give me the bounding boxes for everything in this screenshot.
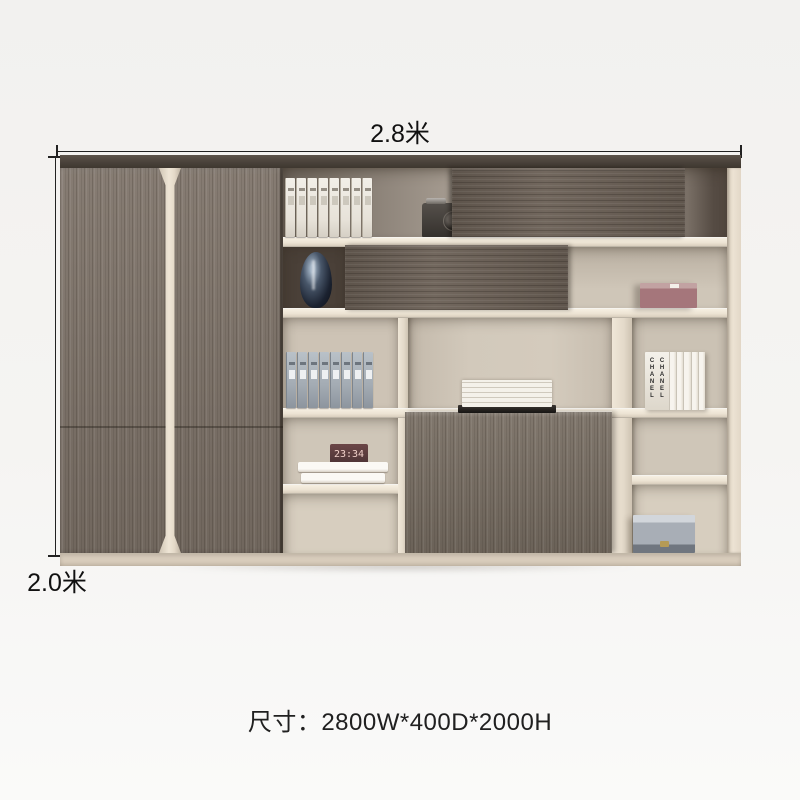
box-latch bbox=[660, 541, 669, 547]
book-edge bbox=[691, 352, 698, 410]
binder-spine bbox=[307, 178, 317, 237]
width-dimension-line bbox=[57, 151, 741, 152]
binder-spine bbox=[296, 178, 306, 237]
gray-storage-box bbox=[633, 515, 695, 553]
binder-spine bbox=[362, 178, 372, 237]
white-book-stack bbox=[462, 380, 552, 407]
lower-sliding-door bbox=[405, 412, 612, 553]
door-handle-strip bbox=[159, 168, 181, 553]
binder-spine bbox=[329, 178, 339, 237]
pink-storage-box bbox=[640, 283, 697, 308]
binder-spine bbox=[297, 352, 307, 408]
book-edge bbox=[669, 352, 676, 410]
binder-spine bbox=[308, 352, 318, 408]
height-dimension-line bbox=[55, 157, 56, 556]
sliding-door-middle bbox=[345, 245, 568, 310]
shelf-left-column bbox=[283, 484, 398, 494]
chanel-books: CHANEL CHANEL bbox=[645, 352, 705, 410]
binder-spine bbox=[352, 352, 362, 408]
cabinet-top-panel bbox=[60, 155, 741, 168]
binder-spine bbox=[285, 178, 295, 237]
binder-spine bbox=[351, 178, 361, 237]
pink-box-label bbox=[670, 284, 679, 288]
book bbox=[298, 462, 388, 472]
dark-vase bbox=[300, 252, 332, 308]
book bbox=[301, 473, 385, 483]
binder-spine bbox=[341, 352, 351, 408]
right-side-panel bbox=[727, 168, 741, 553]
binder-spine bbox=[318, 178, 328, 237]
size-caption: 尺寸：2800W*400D*2000H bbox=[0, 702, 800, 737]
binder-spine bbox=[319, 352, 329, 408]
width-dimension-label: 2.8米 bbox=[300, 114, 500, 150]
chanel-spine-text: CHANEL bbox=[649, 352, 655, 410]
book-edge bbox=[683, 352, 690, 410]
camera-top-detail bbox=[426, 198, 446, 204]
book-edge bbox=[698, 352, 705, 410]
vertical-divider-right bbox=[612, 316, 632, 553]
compartment-back-right-row4 bbox=[632, 416, 727, 475]
sliding-door-top bbox=[452, 168, 685, 237]
white-binders-group bbox=[285, 178, 367, 237]
binder-spine bbox=[286, 352, 296, 408]
compartment-back-left-row5 bbox=[283, 492, 398, 553]
left-door-section bbox=[60, 168, 283, 553]
shelf-right-column bbox=[632, 475, 727, 485]
chanel-book-edges bbox=[669, 352, 705, 410]
book-edge bbox=[676, 352, 683, 410]
binder-spine bbox=[330, 352, 340, 408]
clock-display: 23:34 bbox=[334, 449, 364, 460]
binder-spine bbox=[363, 352, 373, 408]
gray-binders-group bbox=[286, 352, 368, 408]
cabinet-base bbox=[60, 553, 741, 566]
chanel-spine-text: CHANEL bbox=[659, 352, 665, 410]
white-books-pair bbox=[298, 462, 388, 485]
product-photo-page: { "annotations": { "width_label": "2.8米"… bbox=[0, 0, 800, 800]
chanel-book-faces: CHANEL CHANEL bbox=[645, 352, 669, 410]
cabinet: CHANEL CHANEL 23:34 bbox=[60, 155, 741, 566]
binder-spine bbox=[340, 178, 350, 237]
digital-clock: 23:34 bbox=[330, 444, 368, 464]
